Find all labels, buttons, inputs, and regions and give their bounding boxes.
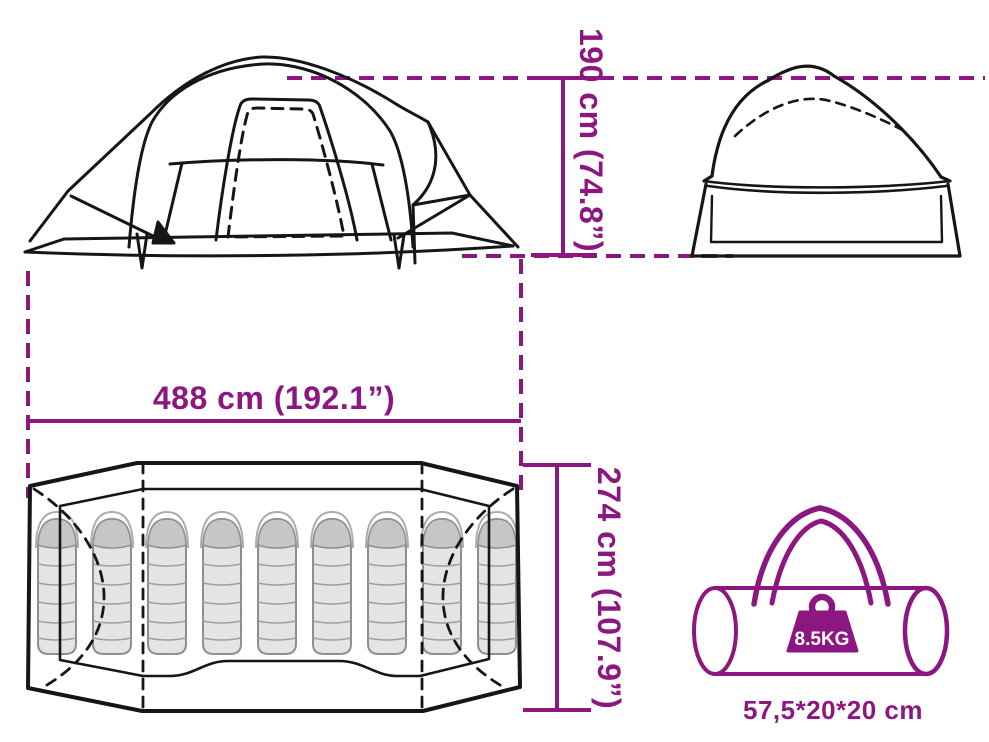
bag-left-endcap — [694, 588, 736, 674]
height-dimension-label: 190 cm (74.8”) — [573, 28, 609, 252]
front-right-dome-edge — [413, 122, 436, 263]
bag-size-label: 57,5*20*20 cm — [743, 695, 923, 725]
sleeping-bag — [256, 512, 298, 654]
sleeping-bag — [476, 512, 518, 654]
front-vent-triangle — [153, 222, 174, 243]
floor-plan — [28, 463, 520, 711]
sleeping-bag — [36, 512, 78, 654]
tent-front-view — [25, 57, 518, 268]
side-dome — [712, 66, 941, 177]
front-left-awning-fold — [71, 196, 153, 236]
front-dome — [129, 64, 413, 247]
sleeping-bag — [146, 512, 188, 654]
tent-side-view — [692, 66, 960, 256]
depth-dimension-label: 274 cm (107.9”) — [591, 467, 627, 709]
side-base-inner — [711, 196, 942, 242]
side-base-outer — [692, 184, 960, 256]
weight-label: 8.5KG — [795, 629, 850, 650]
sleeping-bags — [36, 512, 518, 654]
width-dimension-label: 488 cm (192.1”) — [153, 380, 395, 416]
sleeping-bag — [366, 512, 408, 654]
bag-right-endcap — [905, 588, 947, 674]
side-rim-upper — [704, 176, 950, 181]
sleeping-bag — [421, 512, 463, 654]
side-inner-dome-dashed — [735, 99, 908, 136]
front-inner-right-edge — [372, 164, 391, 240]
tent-dimension-diagram: 8.5KG 190 cm (74.8”) 488 cm (192.1”) 274… — [0, 0, 989, 742]
carry-bag: 8.5KG — [694, 508, 947, 674]
diagram-canvas: 8.5KG 190 cm (74.8”) 488 cm (192.1”) 274… — [0, 0, 989, 742]
depth-dimension — [523, 465, 591, 710]
dimension-extension-lines — [28, 78, 985, 498]
sleeping-bag — [311, 512, 353, 654]
front-right-wing — [428, 122, 518, 247]
front-ground-line — [25, 246, 513, 256]
front-seam-line — [170, 160, 383, 165]
sleeping-bag — [201, 512, 243, 654]
side-rim-line1 — [704, 181, 950, 187]
